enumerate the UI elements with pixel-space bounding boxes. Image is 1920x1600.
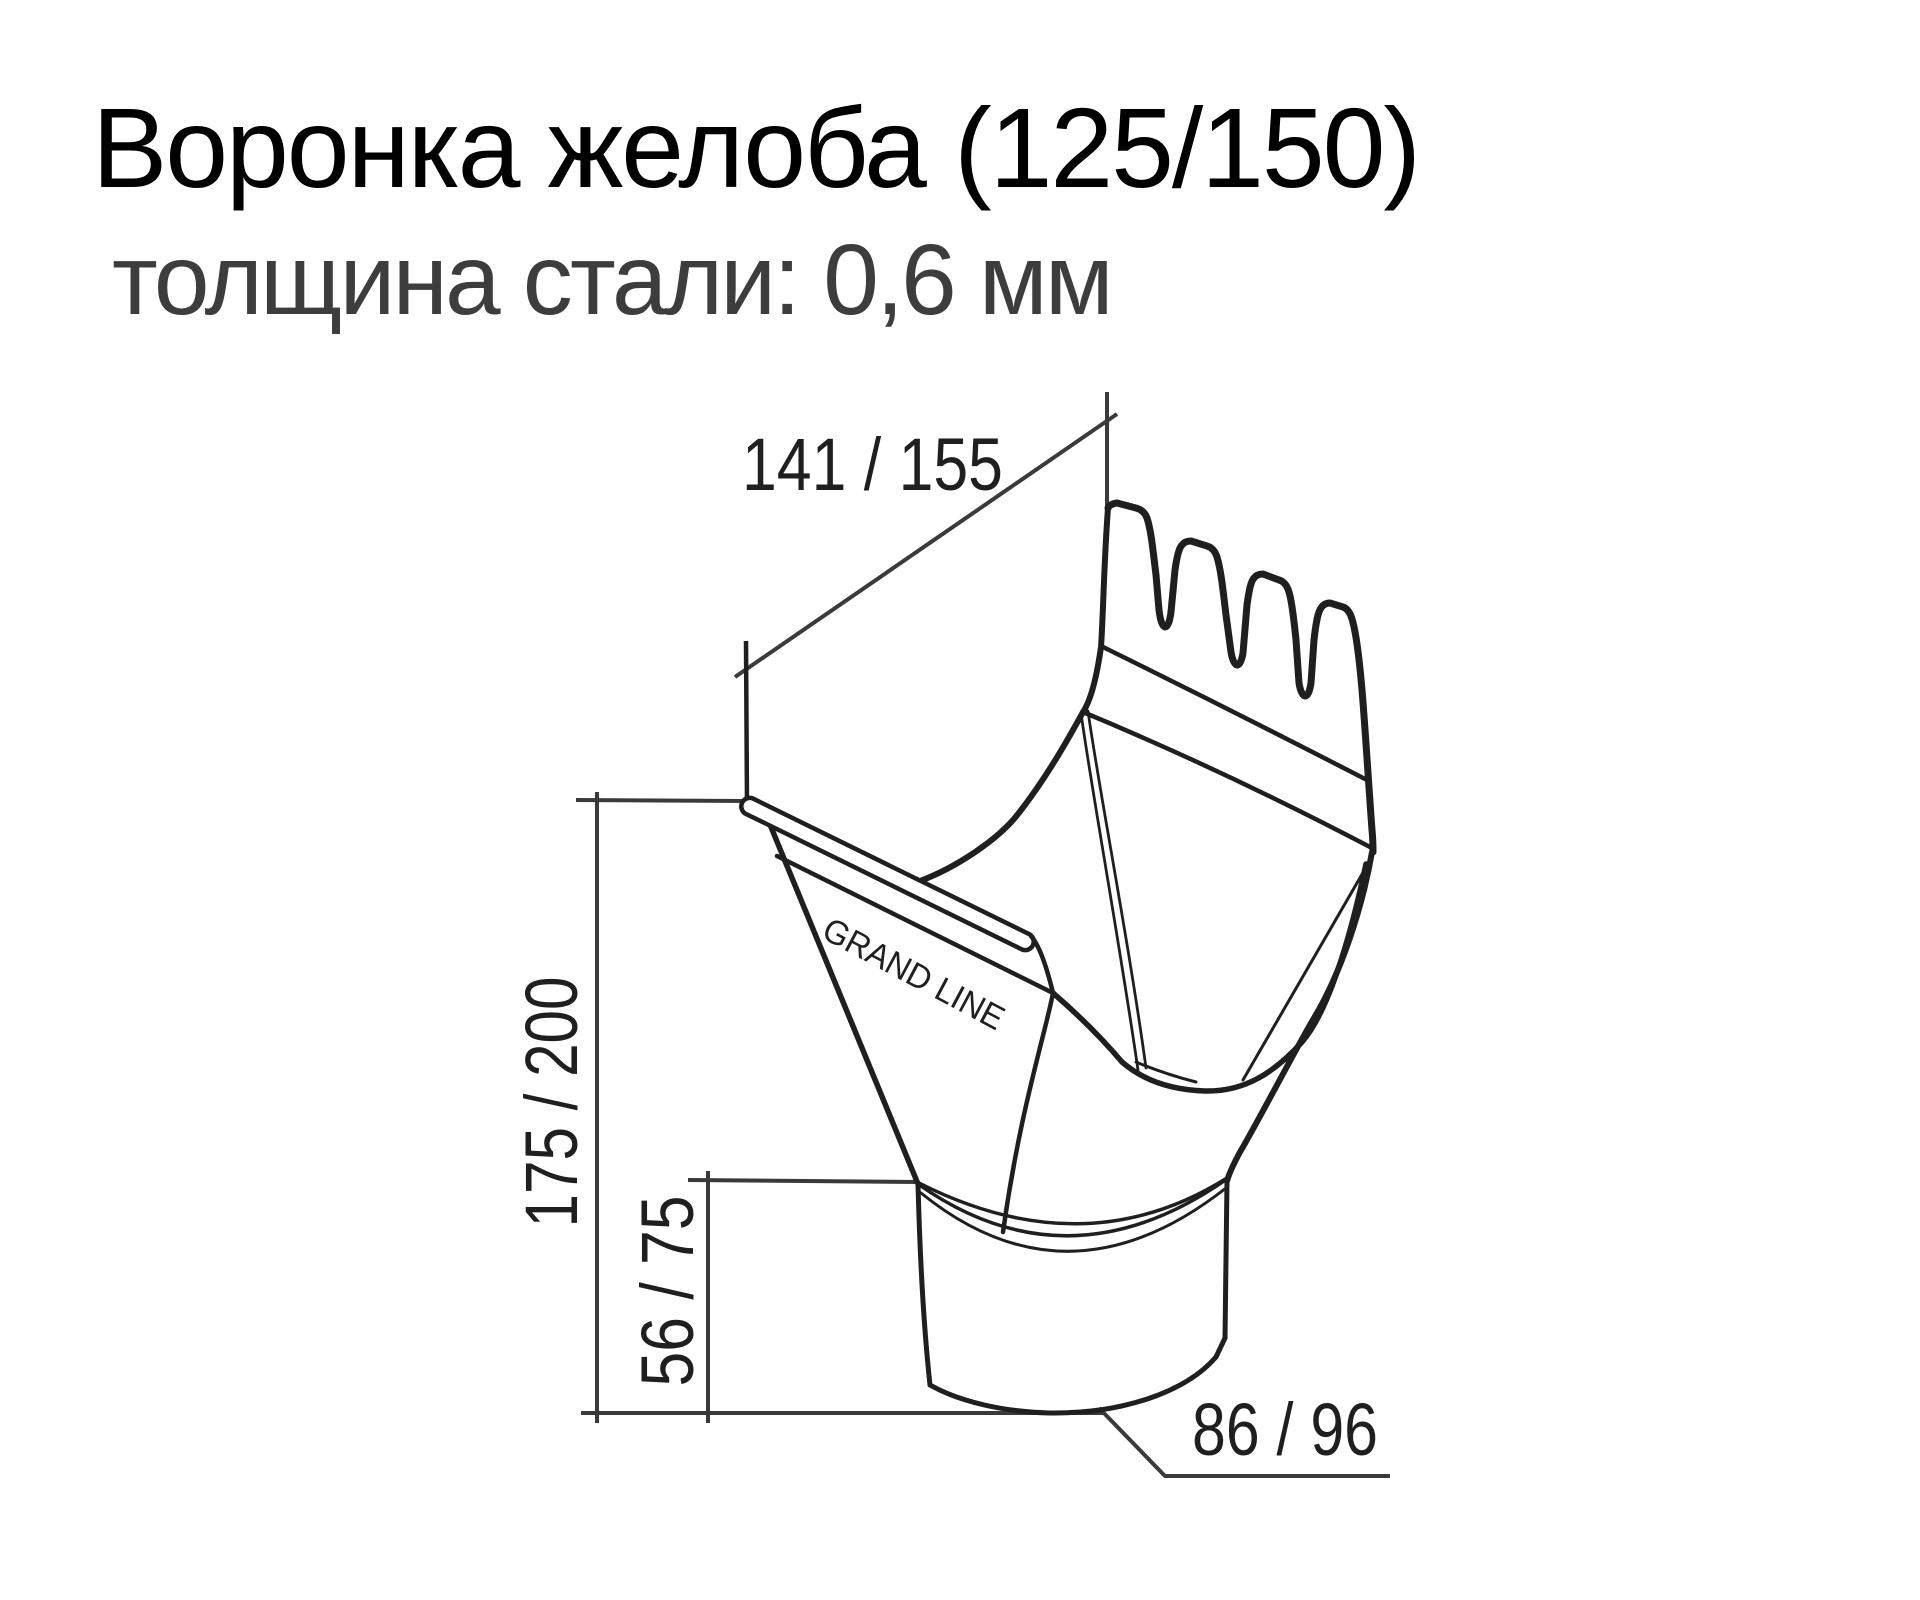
svg-text:56 / 75: 56 / 75 bbox=[626, 1196, 709, 1387]
svg-text:141 / 155: 141 / 155 bbox=[742, 423, 1003, 506]
svg-text:86 / 96: 86 / 96 bbox=[1192, 1388, 1378, 1471]
svg-text:175 / 200: 175 / 200 bbox=[510, 977, 593, 1228]
